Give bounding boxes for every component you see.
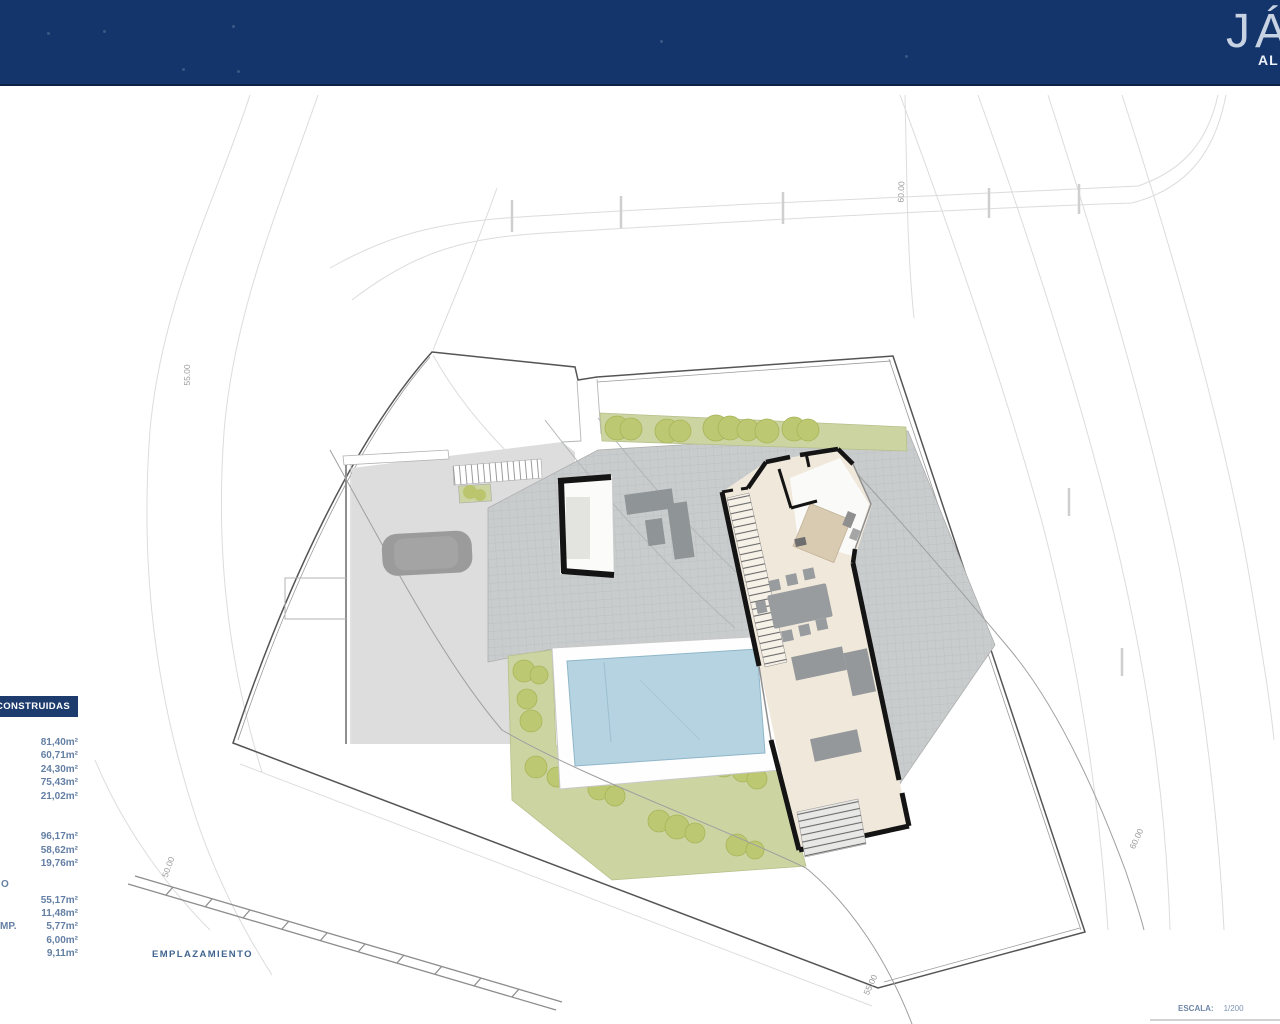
area-value: 11,48m² — [0, 908, 78, 919]
contour-label: 50.00 — [160, 855, 177, 879]
boundary-wall-lines — [128, 876, 562, 1010]
brand-main-text: JÁ — [1226, 5, 1280, 58]
contour-label: 55.00 — [861, 973, 879, 997]
gate-entry-lines — [562, 379, 601, 442]
car — [381, 530, 473, 577]
site-plan-page: 55.00 50.00 60.00 60.00 55.00 JÁ AL CONS… — [0, 0, 1280, 1024]
brand-logo: JÁ AL — [1226, 8, 1280, 56]
terrace-pavilion — [558, 476, 614, 576]
row-label-fragment: MP. — [0, 921, 17, 932]
area-value: 81,40m² — [0, 737, 78, 748]
area-value: 9,11m² — [0, 948, 78, 959]
area-value: 60,71m² — [0, 750, 78, 761]
site-plan-drawing: 55.00 50.00 60.00 60.00 55.00 — [0, 0, 1280, 1024]
area-value: 55,17m² — [0, 895, 78, 906]
area-value: 6,00m² — [0, 935, 78, 946]
drawing-caption: EMPLAZAMIENTO — [152, 949, 253, 960]
areas-table-header: CONSTRUIDAS — [0, 696, 78, 717]
upper-garden-band — [600, 413, 907, 451]
planter — [458, 484, 491, 503]
scale-label: ESCALA: — [1178, 1004, 1214, 1013]
area-value: 19,76m² — [0, 858, 78, 869]
contour-label: 55.00 — [182, 364, 192, 386]
app-header: JÁ AL — [0, 0, 1280, 86]
scale-value: 1/200 — [1224, 1004, 1244, 1013]
contour-label: 60.00 — [1127, 827, 1145, 851]
area-value: 21,02m² — [0, 791, 78, 802]
area-value: 96,17m² — [0, 831, 78, 842]
pool-area — [552, 636, 781, 789]
brand-sub-text: AL — [1258, 52, 1279, 68]
scale-block: ESCALA:1/200 — [1178, 1004, 1244, 1013]
area-value: 24,30m² — [0, 764, 78, 775]
contour-label: 60.00 — [896, 181, 907, 203]
area-value: 58,62m² — [0, 845, 78, 856]
retaining-wall — [285, 465, 351, 744]
pool-water — [567, 649, 765, 766]
row-label-fragment: O — [1, 879, 9, 890]
areas-table-title: CONSTRUIDAS — [0, 701, 70, 712]
area-value: 75,43m² — [0, 777, 78, 788]
